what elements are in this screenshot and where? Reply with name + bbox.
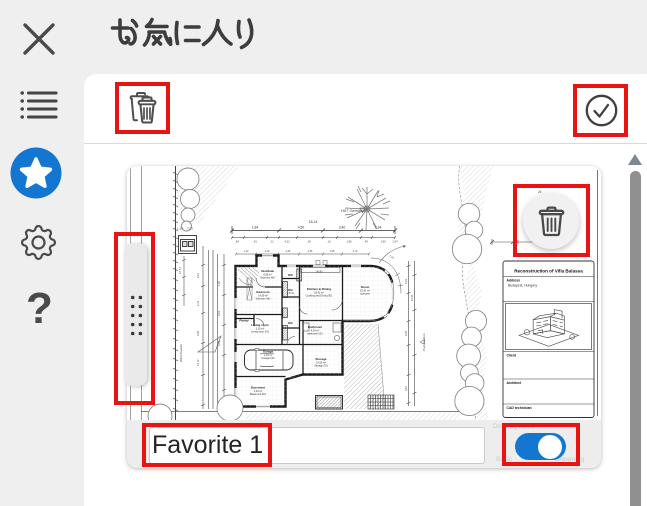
svg-text:18,14: 18,14: [309, 220, 318, 224]
svg-text:WC: WC: [288, 273, 294, 277]
svg-text:5,16: 5,16: [217, 310, 221, 316]
svg-text:Reconstruction of Villa Balass: Reconstruction of Villa Balassa: [514, 269, 583, 274]
svg-text:5,31: 5,31: [404, 278, 408, 284]
svg-text:CAD technician: CAD technician: [507, 406, 532, 410]
svg-text:Pool Position: Pool Position: [422, 333, 426, 351]
svg-text:Subroom Mix: Subroom Mix: [260, 277, 275, 280]
svg-text:14,72: 14,72: [196, 359, 200, 366]
svg-text:2,10: 2,10: [265, 250, 270, 253]
svg-text:bathroom 001: bathroom 001: [307, 333, 323, 336]
svg-text:Architect: Architect: [507, 381, 523, 385]
svg-text:2,96: 2,96: [346, 240, 352, 244]
svg-text:Storage 001: Storage 001: [314, 365, 328, 368]
svg-text:7,03: 7,03: [187, 227, 193, 231]
svg-text:Ofc: Ofc: [288, 321, 293, 325]
svg-text:Bathroom: Bathroom: [308, 325, 322, 329]
svg-text:3,40: 3,40: [339, 226, 346, 230]
svg-text:,36: ,36: [307, 240, 311, 244]
svg-text:Client: Client: [507, 354, 517, 358]
svg-text:Garage: Garage: [263, 350, 274, 354]
svg-text:Basement: Basement: [251, 386, 265, 390]
svg-text:Storage: Storage: [315, 357, 327, 361]
svg-text:,10: ,10: [327, 240, 331, 244]
svg-text:2,70: 2,70: [353, 250, 358, 253]
svg-text:1,16: 1,16: [177, 227, 183, 231]
svg-text:Living room: Living room: [251, 323, 268, 327]
svg-text:3,10: 3,10: [404, 385, 408, 391]
svg-text:Bedroom: Bedroom: [256, 290, 270, 294]
svg-text:3,06: 3,06: [196, 330, 200, 336]
svg-text:Budapest, Hungary: Budapest, Hungary: [508, 284, 537, 288]
svg-text:1,50: 1,50: [217, 280, 221, 286]
svg-text:Room: Room: [361, 285, 370, 289]
svg-text:Basement 001: Basement 001: [250, 393, 267, 396]
svg-text:Living room 001: Living room 001: [251, 331, 269, 334]
svg-text:12,51: 12,51: [410, 294, 414, 301]
svg-text:Subroom Mix: Subroom Mix: [256, 298, 271, 301]
svg-text:2,10: 2,10: [196, 272, 200, 278]
svg-text:Wind Rosette: Wind Rosette: [179, 344, 183, 362]
svg-text:16,51: 16,51: [178, 267, 182, 274]
svg-text:,84: ,84: [235, 240, 239, 244]
svg-text:2,34: 2,34: [375, 226, 382, 230]
svg-text:Garage 001: Garage 001: [261, 357, 275, 360]
svg-text:1,10: 1,10: [244, 250, 249, 253]
svg-text:1,84: 1,84: [252, 226, 259, 230]
svg-text:2,26: 2,26: [286, 250, 291, 253]
svg-text:Address: Address: [507, 279, 521, 283]
svg-text:,11: ,11: [270, 240, 274, 244]
svg-text:1,96: 1,96: [330, 250, 335, 253]
svg-text:Pantry: Pantry: [239, 319, 249, 323]
svg-text:4,26: 4,26: [404, 330, 408, 336]
svg-text:Cooking and Dining 001: Cooking and Dining 001: [306, 295, 333, 298]
svg-text:2,07: 2,07: [388, 254, 395, 261]
svg-text:4,50: 4,50: [298, 226, 305, 230]
svg-text:2,79: 2,79: [196, 300, 200, 306]
svg-text:Kitchen & Dining: Kitchen & Dining: [307, 287, 331, 291]
svg-text:1,90: 1,90: [380, 240, 386, 244]
svg-text:Vestibule: Vestibule: [261, 269, 275, 273]
svg-text:2,5 m²: 2,5 m²: [287, 292, 294, 295]
svg-text:subroom: subroom: [360, 293, 370, 296]
svg-text:,91: ,91: [253, 240, 257, 244]
svg-text:2,36: 2,36: [308, 250, 313, 253]
svg-text:2,34: 2,34: [392, 240, 398, 244]
svg-text:,49: ,49: [364, 240, 368, 244]
svg-text:4,22: 4,22: [284, 240, 290, 244]
svg-text:18190: 18190: [315, 270, 323, 274]
